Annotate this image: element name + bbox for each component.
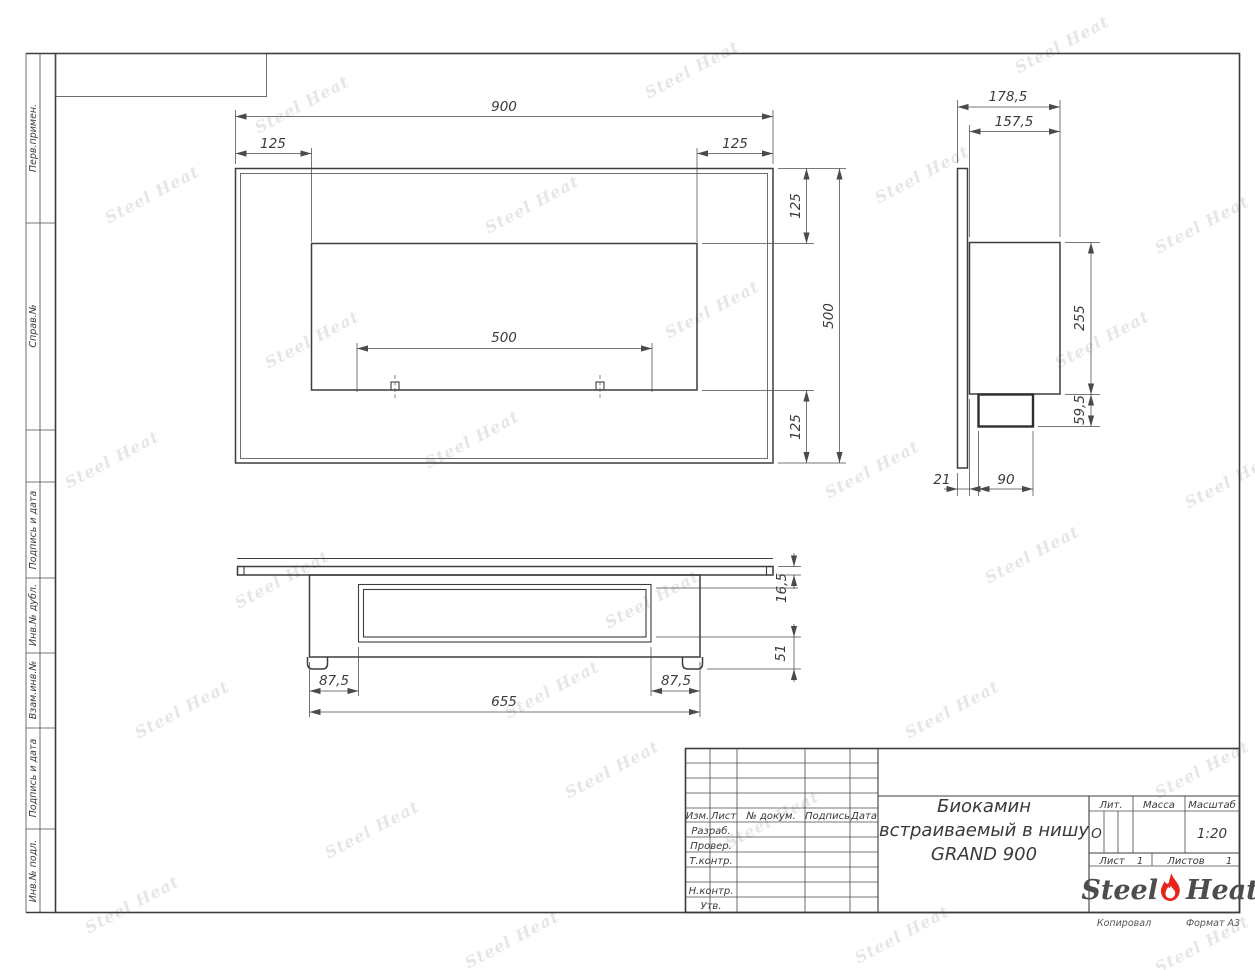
flame-icon xyxy=(1161,873,1180,901)
dim-front-burner-span: 500 xyxy=(491,330,517,346)
tb-row-tkontr: Т.контр. xyxy=(689,856,732,867)
front-outer-panel xyxy=(236,169,774,464)
front-view-dimensions: 900 125 125 125 125 500 500 xyxy=(236,99,847,463)
first-use-box xyxy=(56,54,267,97)
footer-copied: Копировал xyxy=(1097,918,1151,929)
side-view xyxy=(958,169,1061,469)
side-burner-tray xyxy=(979,395,1034,427)
tb-header-doc: № докум. xyxy=(745,811,795,822)
margin-label-inv-dubl: Инв.№ дубл. xyxy=(28,584,39,646)
dim-front-top-offset: 125 xyxy=(788,193,804,219)
front-niche-opening xyxy=(312,244,698,391)
tb-header-izm: Изм. xyxy=(686,811,710,822)
dim-bottom-inset-right: 87,5 xyxy=(661,673,691,689)
title-block: Изм. Лист № докум. Подпись Дата Разраб. … xyxy=(686,749,1255,930)
footer-format: Формат А3 xyxy=(1186,918,1240,929)
front-view xyxy=(236,169,774,464)
tb-mass-label: Масса xyxy=(1143,800,1175,811)
dim-side-body-height: 255 xyxy=(1072,305,1088,331)
steelheat-logo: Steel Heat xyxy=(1081,873,1255,906)
drawing-sheet: Steel HeatSteel HeatSteel HeatSteel Heat… xyxy=(0,0,1255,970)
dim-bottom-panel-thickness: 16,5 xyxy=(774,573,790,603)
dim-side-tray-height: 59,5 xyxy=(1072,395,1088,425)
dim-front-left-offset: 125 xyxy=(260,136,286,152)
tb-row-utv: Утв. xyxy=(701,901,722,912)
dim-side-depth-body: 157,5 xyxy=(995,114,1034,130)
tb-scale-value: 1:20 xyxy=(1197,826,1227,842)
tb-header-sign: Подпись xyxy=(805,811,850,822)
sheet-frame xyxy=(26,54,1240,913)
dim-bottom-tray-drop: 51 xyxy=(773,644,789,661)
tb-lit-value: О xyxy=(1091,826,1102,842)
doc-title-line2: встраиваемый в нишу xyxy=(879,820,1089,841)
margin-label-podpis1: Подпись и дата xyxy=(28,490,39,569)
bottom-body xyxy=(310,575,701,657)
side-body xyxy=(970,243,1061,395)
tb-row-prover: Провер. xyxy=(690,841,732,852)
tb-sheets-label: Листов xyxy=(1166,856,1204,867)
doc-title-line1: Биокамин xyxy=(937,796,1031,817)
logo-steel-text: Steel xyxy=(1081,875,1158,906)
margin-label-perv: Перв.примен. xyxy=(28,104,39,172)
bottom-view xyxy=(237,559,773,670)
tb-row-nkontr: Н.контр. xyxy=(689,886,734,897)
tb-sheet-value: 1 xyxy=(1137,856,1143,867)
side-view-dimensions: 178,5 157,5 255 59,5 21 90 xyxy=(933,89,1100,496)
bottom-burner-opening-inner xyxy=(364,590,647,638)
dim-front-bottom-offset: 125 xyxy=(788,414,804,440)
tb-header-date: Дата xyxy=(850,811,877,822)
tb-row-razrab: Разраб. xyxy=(691,825,730,837)
margin-label-sprav: Справ.№ xyxy=(28,304,39,347)
logo-heat-text: Heat xyxy=(1185,875,1255,906)
doc-title-line3: GRAND 900 xyxy=(931,844,1037,865)
dim-side-panel-gap: 21 xyxy=(933,472,950,488)
margin-stamp-strip: Перв.примен. Справ.№ Подпись и дата Инв.… xyxy=(26,54,56,913)
tb-header-list: Лист xyxy=(710,811,738,822)
dim-front-height: 500 xyxy=(821,303,837,329)
side-front-panel xyxy=(958,169,968,469)
margin-label-podpis2: Подпись и дата xyxy=(28,738,39,817)
foot-left xyxy=(308,657,328,669)
dim-front-width: 900 xyxy=(491,99,517,115)
bottom-burner-opening-outer xyxy=(359,585,652,643)
margin-label-vzam: Взам.инв.№ xyxy=(28,661,39,720)
foot-right xyxy=(683,657,703,669)
dim-front-right-offset: 125 xyxy=(722,136,748,152)
technical-drawing: Перв.примен. Справ.№ Подпись и дата Инв.… xyxy=(0,0,1255,970)
dim-side-tray-depth: 90 xyxy=(997,472,1014,488)
dim-bottom-inset-left: 87,5 xyxy=(319,673,349,689)
margin-label-inv-podl: Инв.№ подл. xyxy=(28,840,39,903)
bottom-view-dimensions: 87,5 87,5 655 16,5 51 xyxy=(310,553,802,717)
dim-bottom-body-width: 655 xyxy=(491,694,517,710)
bottom-panel-edge xyxy=(238,567,774,576)
dim-side-depth-total: 178,5 xyxy=(989,89,1028,105)
tb-sheets-value: 1 xyxy=(1226,856,1232,867)
tb-sheet-label: Лист xyxy=(1098,856,1126,867)
tb-scale-label: Масштаб xyxy=(1188,799,1236,811)
tb-lit-label: Лит. xyxy=(1098,800,1122,811)
